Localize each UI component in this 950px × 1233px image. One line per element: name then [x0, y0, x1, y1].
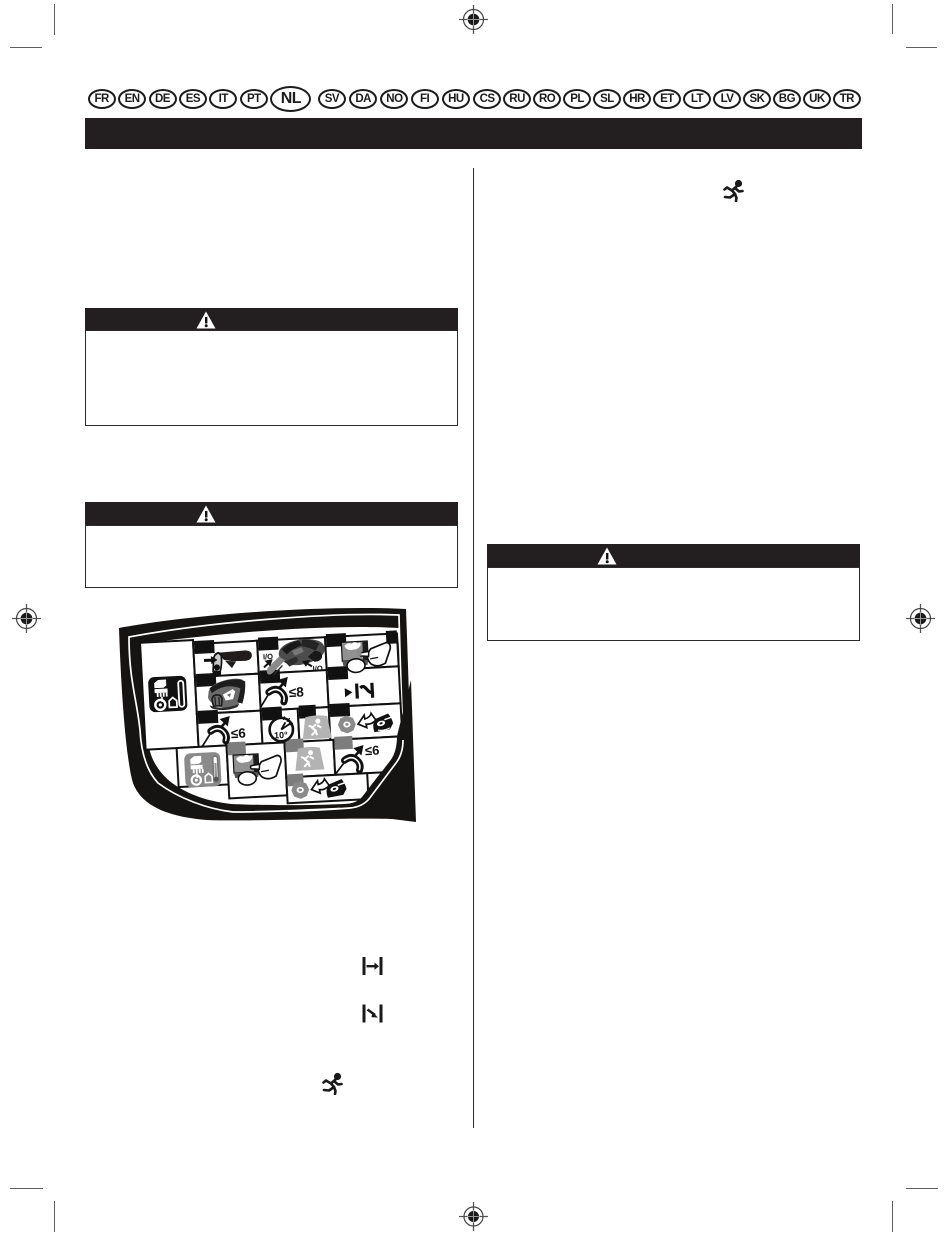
svg-text:≤6: ≤6	[231, 725, 247, 741]
svg-text:≤8: ≤8	[288, 684, 304, 700]
svg-text:10°: 10°	[274, 730, 289, 741]
svg-text:≤6: ≤6	[365, 742, 380, 758]
svg-text:I/O: I/O	[312, 664, 323, 674]
